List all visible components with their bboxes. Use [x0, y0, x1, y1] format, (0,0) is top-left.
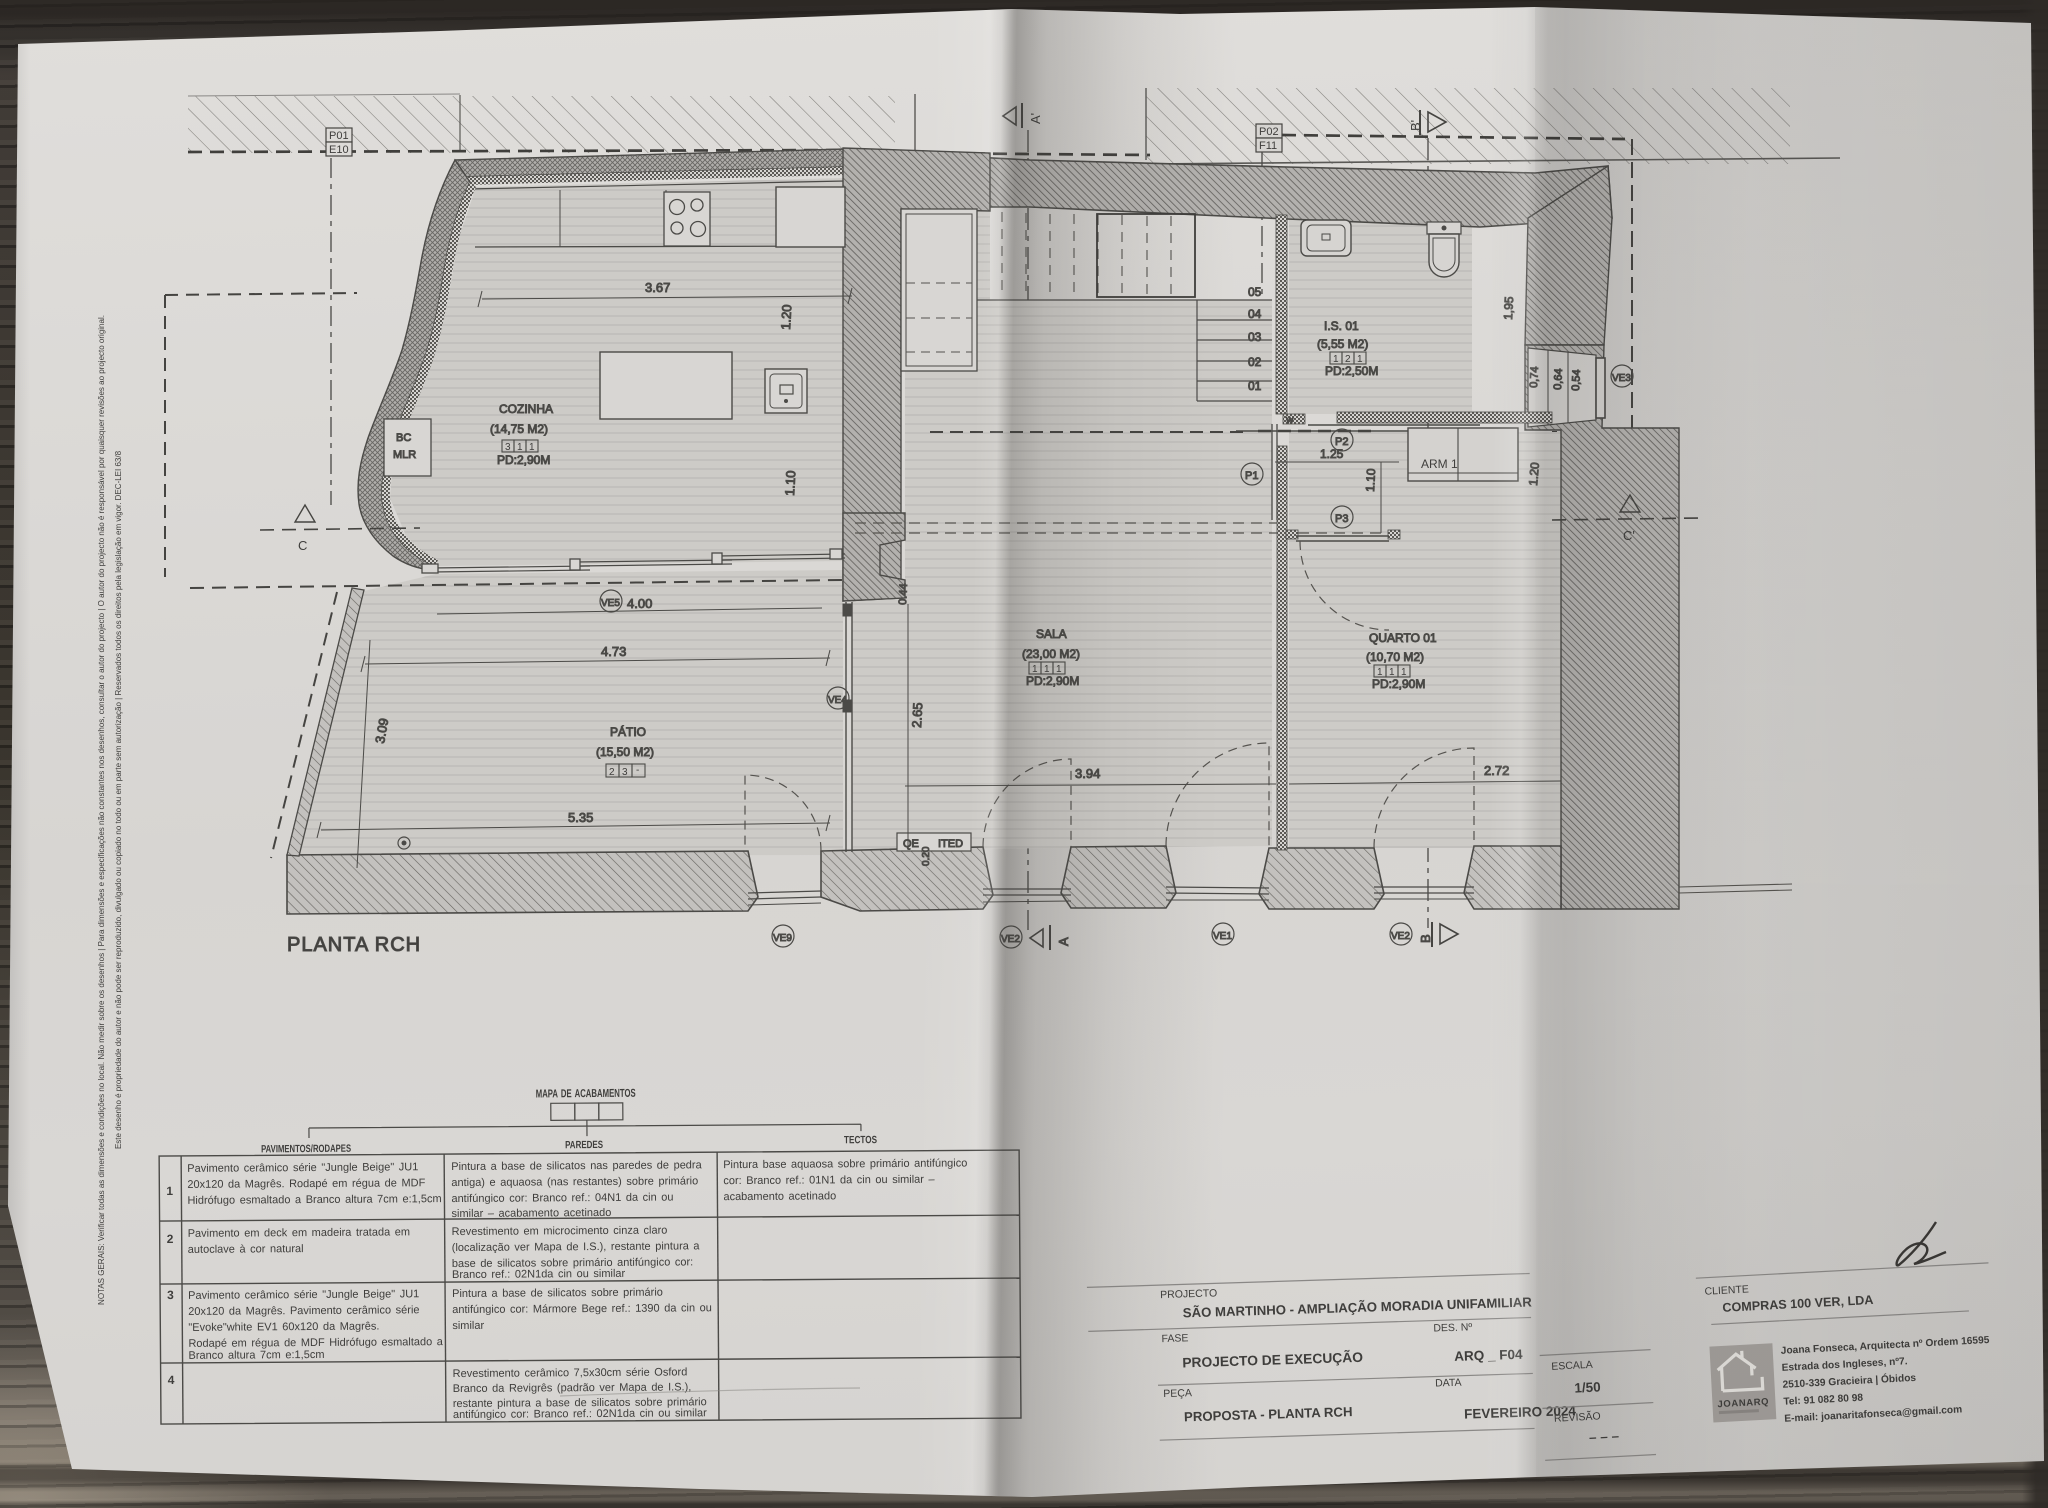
svg-text:PÁTIO: PÁTIO	[610, 724, 646, 739]
svg-text:PD:2,90M: PD:2,90M	[1026, 674, 1079, 688]
svg-text:QUARTO 01: QUARTO 01	[1369, 631, 1437, 645]
svg-text:MLR: MLR	[393, 449, 416, 461]
svg-text:Rodapé em régua de MDF Hidrófu: Rodapé em régua de MDF Hidrófugo esmalta…	[188, 1336, 443, 1350]
svg-text:Pavimento em deck em madeira t: Pavimento em deck em madeira tratada em	[188, 1226, 410, 1240]
svg-text:PEÇA: PEÇA	[1163, 1387, 1192, 1400]
svg-text:2.65: 2.65	[909, 702, 925, 728]
svg-text:ESCALA: ESCALA	[1551, 1359, 1593, 1373]
svg-text:4.73: 4.73	[601, 644, 626, 659]
svg-text:acabamento acetinado: acabamento acetinado	[723, 1190, 836, 1203]
svg-text:"Evoke"white EV1 60x120 da Mag: "Evoke"white EV1 60x120 da Magrês.	[188, 1321, 379, 1334]
svg-text:antifúngico cor: Mármore Bege: antifúngico cor: Mármore Bege ref.: 1390…	[452, 1302, 712, 1316]
svg-text:05: 05	[1248, 285, 1262, 299]
svg-text:1,95: 1,95	[1501, 296, 1516, 320]
svg-text:Pintura a base de silicatos na: Pintura a base de silicatos nas paredes …	[451, 1159, 702, 1173]
svg-text:1: 1	[1044, 664, 1050, 675]
svg-text:0,74: 0,74	[1528, 366, 1541, 388]
svg-text:3: 3	[622, 767, 628, 778]
svg-text:I.S. 01: I.S. 01	[1324, 319, 1359, 333]
svg-text:F11: F11	[1259, 140, 1277, 152]
svg-text:P01: P01	[329, 130, 349, 142]
svg-text:E10: E10	[329, 144, 349, 156]
svg-text:VE4: VE4	[828, 695, 847, 706]
svg-text:1/50: 1/50	[1574, 1379, 1601, 1395]
svg-text:Revestimento cerâmico 7,5x30cm: Revestimento cerâmico 7,5x30cm série Osf…	[453, 1366, 688, 1380]
svg-text:BC: BC	[396, 432, 411, 444]
svg-text:0.20: 0.20	[921, 846, 932, 866]
svg-text:1: 1	[1056, 664, 1062, 675]
svg-text:COMPRAS 100 VER, LDA: COMPRAS 100 VER, LDA	[1722, 1293, 1874, 1315]
svg-text:PD:2,90M: PD:2,90M	[1372, 677, 1425, 691]
svg-text:antifúngico cor: Branco ref.:: antifúngico cor: Branco ref.: 02N1da cin…	[453, 1407, 707, 1421]
svg-text:PLANTA RCH: PLANTA RCH	[287, 934, 421, 956]
svg-text:Tel: 91 082 80 98: Tel: 91 082 80 98	[1783, 1393, 1863, 1408]
svg-text:PAREDES: PAREDES	[565, 1139, 603, 1151]
svg-text:PAVIMENTOS/RODAPES: PAVIMENTOS/RODAPES	[261, 1143, 351, 1156]
svg-text:VE2: VE2	[1001, 934, 1020, 945]
svg-text:1: 1	[1357, 354, 1363, 365]
svg-text:Este desenho é propriedade do: Este desenho é propriedade do autor e nã…	[114, 450, 123, 1149]
svg-text:Estrada dos Ingleses, nº7.: Estrada dos Ingleses, nº7.	[1781, 1356, 1908, 1374]
svg-text:2510-339 Gracieira | Óbidos: 2510-339 Gracieira | Óbidos	[1782, 1371, 1916, 1391]
svg-text:similar: similar	[452, 1320, 484, 1332]
svg-text:MAPA DE ACABAMENTOS: MAPA DE ACABAMENTOS	[536, 1088, 636, 1101]
svg-text:01: 01	[1248, 379, 1262, 393]
svg-text:CLIENTE: CLIENTE	[1704, 1283, 1749, 1297]
svg-text:2: 2	[167, 1232, 174, 1246]
svg-text:VE3: VE3	[1612, 373, 1631, 384]
svg-text:20x120 da Magrês. Pavimento ce: 20x120 da Magrês. Pavimento cerâmico sér…	[188, 1304, 419, 1318]
svg-text:REVISÃO: REVISÃO	[1554, 1409, 1601, 1424]
svg-text:PD:2,90M: PD:2,90M	[497, 453, 550, 467]
svg-text:1.20: 1.20	[1526, 461, 1542, 486]
svg-text:SALA: SALA	[1036, 627, 1067, 641]
svg-text:3.94: 3.94	[1075, 766, 1100, 781]
svg-text:(23,00 M2): (23,00 M2)	[1022, 647, 1080, 661]
svg-text:P3: P3	[1335, 513, 1348, 525]
svg-text:1.10: 1.10	[1363, 468, 1378, 492]
svg-text:Branco altura 7cm e:1,5cm: Branco altura 7cm e:1,5cm	[188, 1349, 324, 1362]
svg-text:cor: Branco ref.: 01N1 da cin: cor: Branco ref.: 01N1 da cin ou similar…	[723, 1174, 935, 1187]
svg-text:(15,50 M2): (15,50 M2)	[596, 745, 654, 759]
svg-text:04: 04	[1248, 307, 1262, 321]
svg-text:1.10: 1.10	[782, 470, 798, 496]
svg-text:NOTAS GERAIS: Verificar todas: NOTAS GERAIS: Verificar todas as dimensõ…	[97, 315, 106, 1305]
svg-text:COZINHA: COZINHA	[499, 402, 553, 416]
svg-text:1: 1	[1401, 667, 1407, 678]
svg-text:(5,55 M2): (5,55 M2)	[1317, 337, 1368, 351]
svg-text:1: 1	[1389, 667, 1395, 678]
svg-text:Pavimento cerâmico série "Jung: Pavimento cerâmico série "Jungle Beige" …	[187, 1161, 418, 1175]
svg-text:DATA: DATA	[1435, 1377, 1462, 1390]
svg-text:VE2: VE2	[1391, 931, 1410, 942]
svg-text:1: 1	[166, 1184, 173, 1198]
svg-text:C: C	[298, 538, 307, 553]
svg-text:B: B	[1418, 934, 1433, 943]
svg-text:03: 03	[1248, 330, 1262, 344]
svg-text:similar – acabamento acetinado: similar – acabamento acetinado	[451, 1207, 611, 1220]
svg-text:P1: P1	[1245, 470, 1258, 482]
svg-text:Hidrófugo esmaltado a Branco a: Hidrófugo esmaltado a Branco altura 7cm …	[187, 1193, 441, 1207]
svg-text:ARQ _ F04: ARQ _ F04	[1454, 1347, 1523, 1364]
svg-text:Joana Fonseca, Arquitecta nº O: Joana Fonseca, Arquitecta nº Ordem 16595	[1781, 1335, 1990, 1357]
svg-text:PROJECTO DE EXECUÇÃO: PROJECTO DE EXECUÇÃO	[1182, 1348, 1363, 1371]
svg-text:VE5: VE5	[601, 598, 620, 609]
svg-text:4: 4	[168, 1373, 175, 1387]
svg-text:antiga) e aquaosa (nas restant: antiga) e aquaosa (nas restantes) sobre …	[451, 1175, 698, 1189]
svg-text:P02: P02	[1259, 126, 1279, 138]
svg-text:VE1: VE1	[1213, 931, 1232, 942]
svg-text:(14,75 M2): (14,75 M2)	[490, 422, 548, 436]
svg-text:C': C'	[1623, 528, 1635, 543]
svg-text:– – –: – – –	[1589, 1428, 1620, 1445]
svg-text:ARM 1: ARM 1	[1421, 457, 1458, 471]
svg-text:1: 1	[1377, 667, 1383, 678]
svg-text:E-mail: joanaritafonseca@gmail: E-mail: joanaritafonseca@gmail.com	[1784, 1404, 1962, 1424]
svg-text:A': A'	[1028, 113, 1043, 124]
svg-text:(10,70 M2): (10,70 M2)	[1366, 650, 1424, 664]
svg-text:2.72: 2.72	[1484, 763, 1509, 778]
svg-text:antifúngico cor: Branco ref.:: antifúngico cor: Branco ref.: 04N1 da ci…	[451, 1191, 673, 1205]
svg-text:DES. Nº: DES. Nº	[1433, 1321, 1472, 1334]
svg-text:VE9: VE9	[773, 933, 792, 944]
svg-text:W: W	[1286, 416, 1294, 425]
svg-text:0.44: 0.44	[897, 583, 910, 605]
svg-text:20x120 da Magrês. Rodapé em ré: 20x120 da Magrês. Rodapé em régua de MDF	[187, 1177, 425, 1191]
svg-text:2: 2	[1345, 354, 1351, 365]
svg-text:1: 1	[1333, 354, 1339, 365]
svg-text:-: -	[636, 765, 639, 776]
svg-text:3: 3	[505, 442, 511, 453]
svg-text:TECTOS: TECTOS	[844, 1134, 877, 1146]
svg-text:1: 1	[517, 442, 523, 453]
svg-text:2: 2	[609, 767, 615, 778]
svg-text:1.25: 1.25	[1320, 447, 1344, 461]
svg-text:autoclave à cor natural: autoclave à cor natural	[188, 1243, 304, 1256]
svg-text:A: A	[1056, 937, 1071, 946]
svg-text:QE: QE	[903, 838, 919, 850]
svg-text:3: 3	[167, 1288, 174, 1302]
svg-text:0,64: 0,64	[1552, 368, 1565, 390]
svg-text:Pintura a base de silicatos so: Pintura a base de silicatos sobre primár…	[452, 1287, 663, 1300]
svg-text:FASE: FASE	[1161, 1332, 1188, 1345]
svg-text:1: 1	[1032, 664, 1038, 675]
svg-text:ITED: ITED	[938, 838, 963, 850]
svg-text:PROPOSTA - PLANTA RCH: PROPOSTA - PLANTA RCH	[1184, 1404, 1353, 1424]
svg-text:4.00: 4.00	[627, 596, 652, 611]
svg-text:1.20: 1.20	[778, 304, 794, 330]
svg-text:Pintura base aquaosa sobre pri: Pintura base aquaosa sobre primário anti…	[723, 1157, 967, 1171]
svg-text:Pavimento cerâmico série "Jung: Pavimento cerâmico série "Jungle Beige" …	[188, 1288, 419, 1302]
svg-text:02: 02	[1248, 355, 1262, 369]
svg-text:Branco ref.: 02N1da cin ou sim: Branco ref.: 02N1da cin ou similar	[452, 1268, 626, 1281]
svg-text:5.35: 5.35	[568, 810, 593, 825]
svg-text:3.67: 3.67	[645, 280, 670, 295]
svg-text:Revestimento em microcimento c: Revestimento em microcimento cinza claro	[452, 1225, 668, 1239]
svg-text:(localização ver Mapa de I.S.): (localização ver Mapa de I.S.), restante…	[452, 1240, 701, 1254]
svg-text:PROJECTO: PROJECTO	[1160, 1287, 1217, 1301]
svg-text:PD:2,50M: PD:2,50M	[1325, 364, 1378, 378]
svg-text:0,54: 0,54	[1570, 369, 1583, 391]
svg-text:SÃO MARTINHO - AMPLIAÇÃO MO: SÃO MARTINHO - AMPLIAÇÃO MORADIA UNIFAMI…	[1183, 1294, 1533, 1320]
svg-text:1: 1	[529, 442, 535, 453]
